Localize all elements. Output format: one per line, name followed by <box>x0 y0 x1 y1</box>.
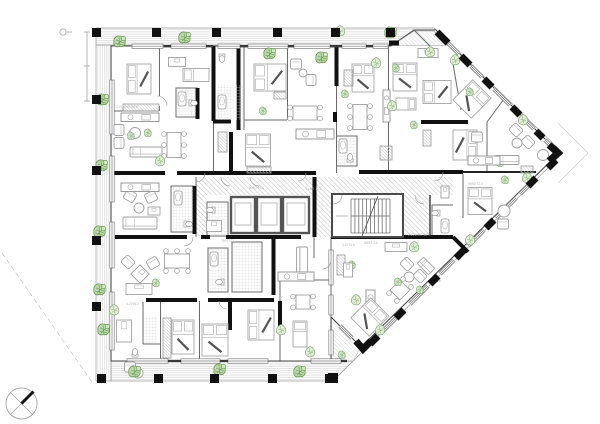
svg-text:FLUR 12.2: FLUR 12.2 <box>306 187 322 191</box>
svg-text:4-ZI 96.2: 4-ZI 96.2 <box>126 302 139 306</box>
svg-text:ABST 3.4: ABST 3.4 <box>364 241 378 245</box>
svg-text:2-ZI-WHG 58.2: 2-ZI-WHG 58.2 <box>116 105 138 109</box>
svg-text:3-ZI 74.6: 3-ZI 74.6 <box>342 243 355 247</box>
svg-text:2-ZI-WHG 48.9: 2-ZI-WHG 48.9 <box>408 233 430 237</box>
svg-text:WHG 61.4: WHG 61.4 <box>249 186 264 190</box>
svg-text:TRH 24.1: TRH 24.1 <box>221 239 235 243</box>
svg-text:WHG 72.3: WHG 72.3 <box>468 182 483 186</box>
